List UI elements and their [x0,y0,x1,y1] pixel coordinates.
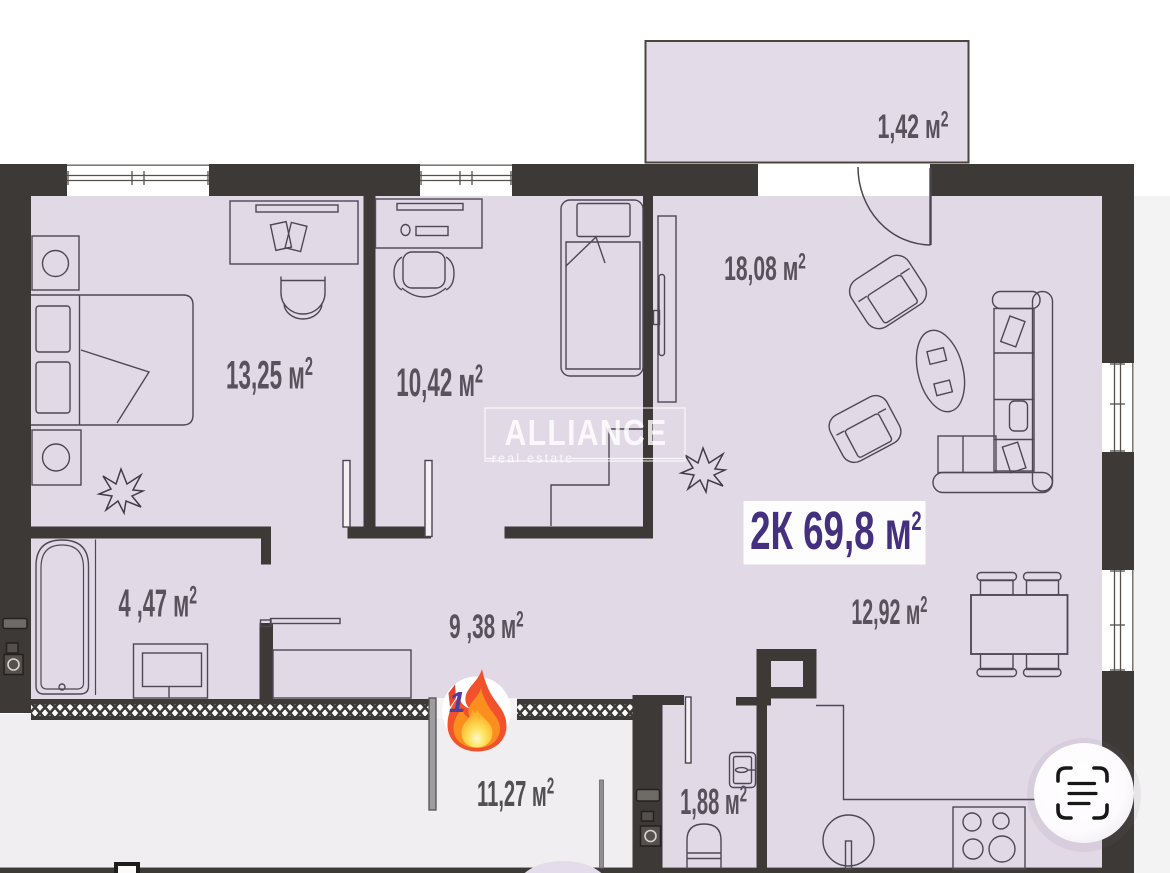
svg-text:12,92 м2: 12,92 м2 [851,591,927,633]
svg-text:1,88 м2: 1,88 м2 [680,782,747,823]
svg-text:4 ,47 м2: 4 ,47 м2 [119,581,198,625]
svg-text:ALLIANCE: ALLIANCE [505,414,668,454]
svg-text:real estate: real estate [492,452,575,466]
svg-text:2К 69,8 м: 2К 69,8 м [750,500,912,561]
svg-text:1,42 м2: 1,42 м2 [877,106,948,146]
svg-text:11,27 м2: 11,27 м2 [477,774,554,815]
svg-text:10,42 м2: 10,42 м2 [396,360,483,404]
svg-text:2: 2 [911,505,921,535]
svg-text:1: 1 [449,687,465,719]
svg-text:9 ,38 м2: 9 ,38 м2 [449,606,524,647]
svg-text:13,25 м2: 13,25 м2 [226,353,313,397]
svg-text:18,08 м2: 18,08 м2 [724,248,806,287]
